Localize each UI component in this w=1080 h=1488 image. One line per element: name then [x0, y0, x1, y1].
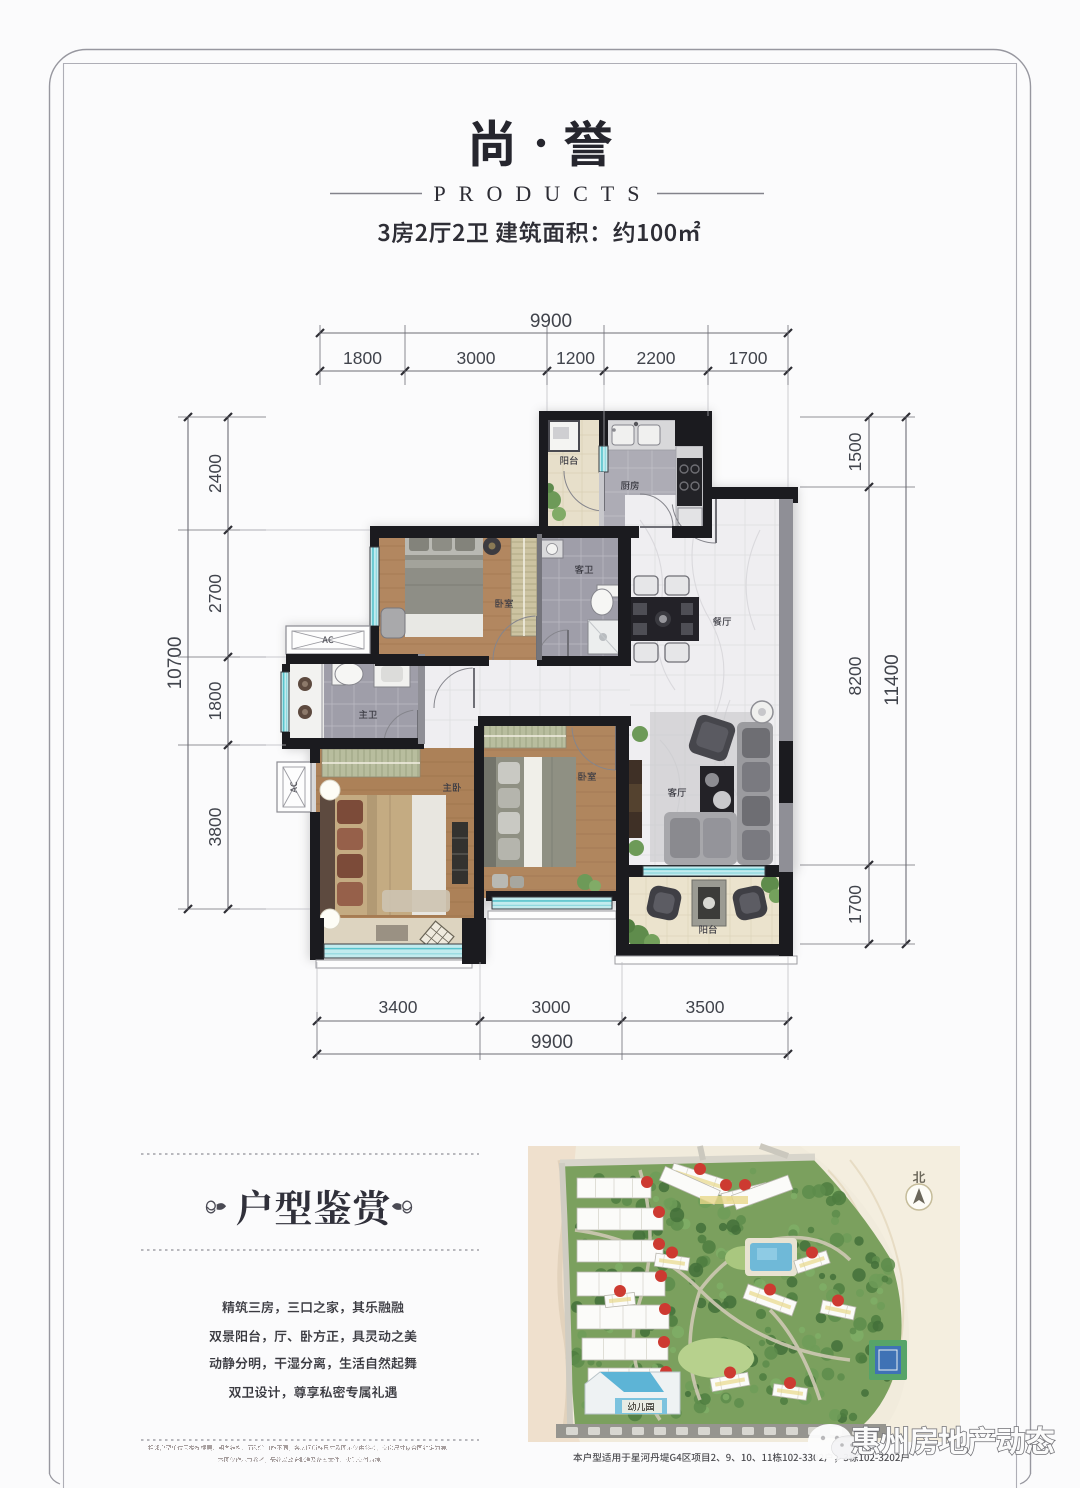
svg-text:3800: 3800: [205, 807, 225, 846]
svg-text:3400: 3400: [379, 997, 418, 1017]
svg-text:9900: 9900: [530, 311, 572, 332]
svg-text:1800: 1800: [205, 681, 225, 720]
svg-text:11400: 11400: [882, 654, 903, 705]
svg-text:2400: 2400: [205, 454, 225, 493]
svg-text:1500: 1500: [845, 432, 865, 471]
svg-text:2700: 2700: [205, 574, 225, 613]
svg-text:10700: 10700: [165, 637, 186, 690]
svg-text:1700: 1700: [729, 348, 768, 368]
svg-text:8200: 8200: [845, 656, 865, 695]
svg-text:2200: 2200: [637, 348, 676, 368]
svg-text:9900: 9900: [531, 1032, 573, 1053]
svg-text:PRODUCTS: PRODUCTS: [434, 181, 653, 206]
svg-text:3000: 3000: [532, 997, 571, 1017]
svg-text:1200: 1200: [556, 348, 595, 368]
svg-text:1800: 1800: [343, 348, 382, 368]
svg-text:3000: 3000: [457, 348, 496, 368]
svg-text:3500: 3500: [686, 997, 725, 1017]
svg-text:1700: 1700: [845, 885, 865, 924]
